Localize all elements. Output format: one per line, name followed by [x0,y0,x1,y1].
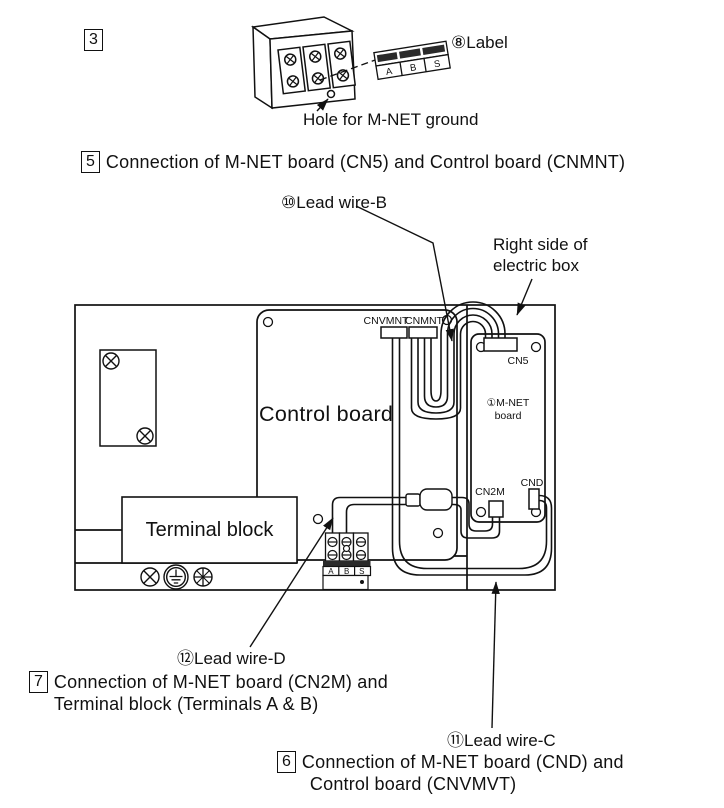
section-7-number: 7 [29,671,48,693]
step-3-number: 3 [84,29,103,51]
section-6-caption: 6 Connection of M-NET board (CND) and Co… [277,751,624,795]
cnmnt-label: CNMNT [405,315,443,327]
wiring-diagram-page: A B S CNVMNT CNMNT CN5 CN2M [0,0,724,808]
section-7-line1: Connection of M-NET board (CN2M) and [54,671,388,693]
terminal-block-3d-figure [253,17,355,108]
section-6-line1: Connection of M-NET board (CND) and [302,751,624,773]
section-7-line2: Terminal block (Terminals A & B) [54,693,388,715]
control-board-label: Control board [259,402,393,427]
abs-cell-a: A [328,567,334,576]
lead-wire-b-callout: ⑩Lead wire-B [281,193,387,213]
terminal-column [278,47,305,93]
terminal-block-label: Terminal block [122,497,297,563]
mounting-bracket [100,350,156,446]
cnd-connector [529,489,539,509]
label-strip: A B S [374,41,450,79]
cn5-label: CN5 [507,355,528,367]
cnvmnt-connector [381,327,407,338]
abs-cell-b: B [344,567,349,576]
section-6-line2: Control board (CNVMVT) [302,773,624,795]
abs-terminal-block: A B S [323,533,371,590]
section-5-heading: 5 Connection of M-NET board (CN5) and Co… [81,151,625,173]
cnvmnt-label: CNVMNT [364,315,409,327]
abs-cell-s: S [359,567,364,576]
mnet-board-label2: board [495,410,522,422]
terminal-column [303,44,330,90]
section-7-caption: 7 Connection of M-NET board (CN2M) and T… [29,671,388,715]
ground-symbols [141,565,212,589]
cnmnt-connector [409,327,437,338]
hole-caption: Hole for M-NET ground [303,110,478,130]
cn2m-connector [489,501,503,517]
cn5-connector [484,338,517,351]
section-5-number: 5 [81,151,100,173]
lead-wire-c-arrow [492,582,496,728]
ground-hole [328,91,335,98]
abs-print-strip [323,561,371,567]
right-side-arrow [517,279,532,315]
section-5-title: Connection of M-NET board (CN5) and Cont… [106,151,625,173]
terminal-column [328,41,355,87]
cn2m-label: CN2M [475,486,505,498]
lead-wire-c-callout: ⑪Lead wire-C [447,726,556,751]
cnd-label: CND [521,477,544,489]
lead-wire-d-callout: ⑫Lead wire-D [177,644,286,669]
section-6-number: 6 [277,751,296,773]
label-callout: ⑧Label [451,33,508,53]
mnet-board-label: ①M-NET [487,397,530,409]
right-side-callout: Right side of electric box [493,234,588,276]
